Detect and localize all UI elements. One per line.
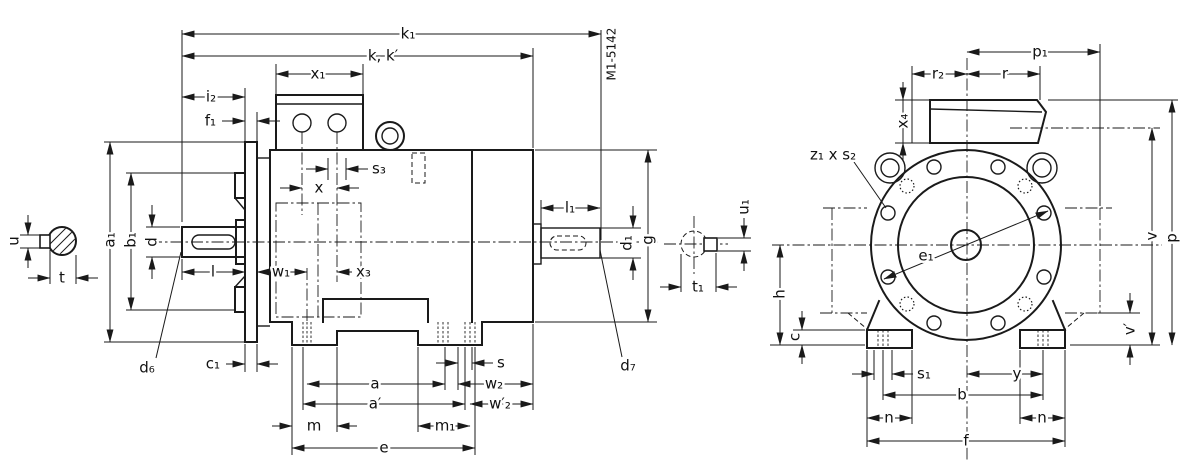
label-v-prime: v′ (1121, 322, 1139, 335)
label-l1: l₁ (565, 199, 575, 217)
label-t: t (59, 269, 65, 287)
terminal-box-front (930, 100, 1046, 143)
label-v: v (1143, 231, 1161, 240)
motor-dimension-drawing-page: k₁ k, k′ x₁ i₂ f₁ s₃ x M1-5142 u t a₁ b₁… (0, 0, 1200, 476)
key-notch (40, 235, 50, 248)
label-s: s (497, 354, 505, 372)
label-a1: a₁ (101, 232, 119, 247)
label-s1: s₁ (917, 365, 931, 383)
motor-body-side (270, 150, 533, 345)
label-f: f (963, 432, 969, 450)
label-d6: d₆ (139, 359, 155, 377)
label-s3: s₃ (372, 160, 386, 178)
label-r: r (1002, 65, 1009, 83)
label-k1: k₁ (401, 25, 416, 43)
label-c1: c₁ (206, 355, 220, 373)
label-p: p (1163, 233, 1181, 243)
front-view (770, 44, 1178, 462)
label-y: y (1013, 365, 1022, 383)
cable-entry-hole (328, 114, 346, 132)
label-i2: i₂ (206, 88, 216, 106)
shaft-section-drive-end (40, 218, 86, 266)
label-w1: w₁ (272, 263, 290, 281)
label-u: u (5, 236, 23, 246)
label-l: l (211, 263, 215, 281)
label-w2: w₂ (485, 375, 503, 393)
label-g: g (639, 235, 657, 245)
label-h: h (771, 289, 789, 299)
motor-dimension-drawing: k₁ k, k′ x₁ i₂ f₁ s₃ x M1-5142 u t a₁ b₁… (0, 0, 1200, 476)
label-x4: x₄ (894, 114, 912, 129)
label-k: k, k′ (368, 47, 399, 65)
keyway-slot-hidden (550, 236, 586, 250)
label-a-prime: a′ (369, 395, 382, 413)
label-t1: t₁ (692, 278, 704, 296)
lifting-eyes-front (875, 153, 1057, 183)
label-e: e (379, 439, 388, 457)
label-n-left: n (884, 409, 894, 427)
label-r2: r₂ (932, 65, 944, 83)
label-b1: b₁ (122, 232, 140, 248)
front-dimensions (770, 44, 1178, 447)
cable-entry-hole (293, 114, 311, 132)
side-foot-slots (303, 322, 475, 345)
key-notch (704, 238, 717, 251)
label-a: a (370, 375, 379, 393)
lifting-eye-side (376, 122, 404, 150)
label-u1: u₁ (735, 199, 753, 215)
label-p1: p₁ (1032, 43, 1048, 61)
label-c: c (786, 333, 804, 341)
label-f1: f₁ (205, 112, 216, 130)
label-n-right: n (1037, 409, 1047, 427)
label-z1-s2: z₁ x s₂ (810, 146, 856, 164)
label-d1: d₁ (618, 235, 636, 251)
dimension-labels: k₁ k, k′ x₁ i₂ f₁ s₃ x M1-5142 u t a₁ b₁… (5, 25, 1181, 457)
label-e1: e₁ (918, 247, 933, 265)
drain-hole-mark (412, 153, 425, 183)
label-d7: d₇ (620, 357, 636, 375)
label-drawing-number: M1-5142 (605, 28, 619, 81)
label-m: m (307, 417, 322, 435)
label-d: d (143, 237, 161, 247)
label-x: x (315, 179, 324, 197)
terminal-box-side (276, 95, 363, 150)
label-x1: x₁ (311, 65, 326, 83)
label-b: b (957, 386, 967, 404)
label-x3: x₃ (356, 263, 371, 281)
label-w2-prime: w′₂ (489, 395, 511, 413)
non-drive-shaft (533, 224, 600, 264)
label-m1: m₁ (435, 417, 456, 435)
